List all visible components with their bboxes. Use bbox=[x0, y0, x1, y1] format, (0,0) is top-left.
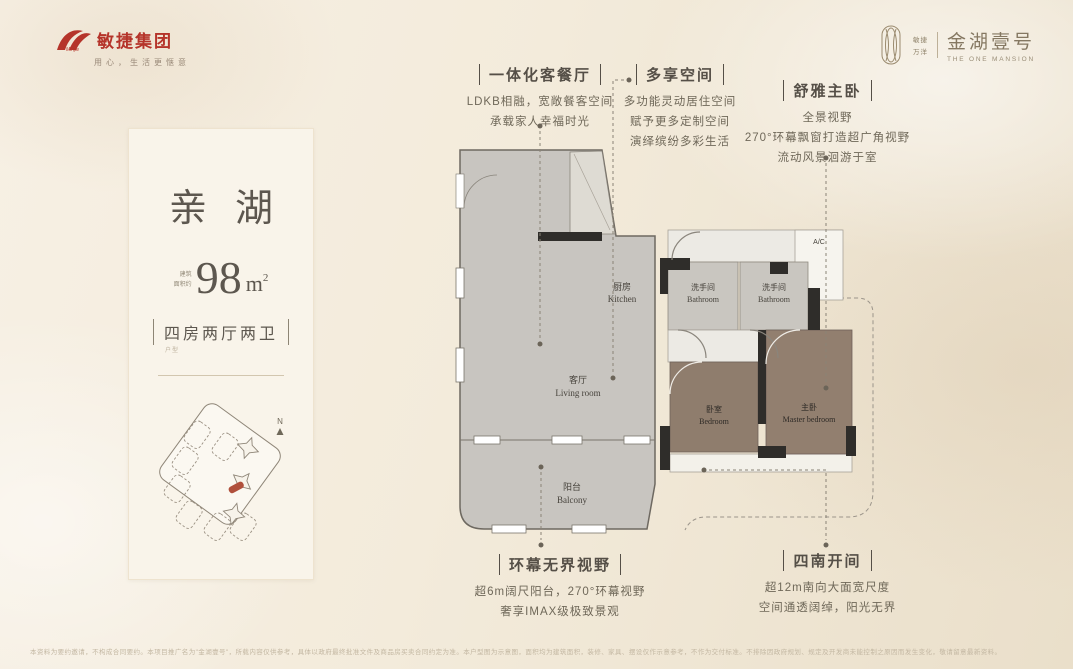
area-prefix-line1: 建筑 bbox=[174, 269, 192, 278]
label-bath2-en: Bathroom bbox=[758, 295, 791, 304]
callout-title: 一体化客餐厅 bbox=[479, 64, 601, 85]
unit-area: 建筑 面积约 98 m2 bbox=[129, 258, 313, 297]
floor-plan: 厨房 Kitchen 客厅 Living room 阳台 Balcony 洗手间… bbox=[452, 138, 882, 546]
site-boundary bbox=[156, 400, 285, 529]
area-unit: m bbox=[246, 271, 263, 296]
callout-title: 舒雅主卧 bbox=[783, 80, 871, 101]
card-separator bbox=[158, 375, 284, 376]
label-balcony-zh: 阳台 bbox=[563, 481, 581, 492]
brand-name: 敏捷集团 bbox=[97, 27, 173, 52]
callout-master-suite: 舒雅主卧 全景视野 270°环幕飘窗打造超广角视野 流动风景洄游于室 bbox=[730, 80, 925, 168]
label-kitchen-zh: 厨房 bbox=[613, 281, 631, 292]
callout-line: 流动风景洄游于室 bbox=[730, 148, 925, 168]
project-name: 金湖壹号 bbox=[947, 27, 1035, 54]
entry-door-gap bbox=[456, 174, 464, 208]
callout-line: 超6m阔尺阳台，270°环幕视野 bbox=[460, 582, 660, 602]
brand-swoosh-icon: Minjie bbox=[56, 26, 92, 52]
label-living-zh: 客厅 bbox=[569, 374, 587, 385]
unit-title: 亲湖 bbox=[129, 177, 313, 232]
callout-line: 全景视野 bbox=[730, 108, 925, 128]
area-prefix-line2: 面积约 bbox=[174, 279, 192, 288]
room-main-gray bbox=[460, 150, 655, 529]
wall-kitchen bbox=[538, 232, 602, 241]
callout-title: 环幕无界视野 bbox=[499, 554, 621, 575]
label-bedroom-zh: 卧室 bbox=[706, 404, 722, 414]
label-balcony-en: Balcony bbox=[557, 495, 587, 505]
area-sup: 2 bbox=[263, 272, 269, 284]
label-living-en: Living room bbox=[555, 388, 600, 398]
area-value: 98 bbox=[196, 258, 242, 297]
label-bedroom-en: Bedroom bbox=[699, 417, 730, 426]
unit-layout: 四房两厅两卫 bbox=[153, 319, 289, 345]
unit-card: 亲湖 建筑 面积约 98 m2 四房两厅两卫 户型 bbox=[128, 128, 314, 580]
label-master-zh: 主卧 bbox=[801, 402, 817, 412]
project-name-en: THE ONE MANSION bbox=[947, 56, 1035, 63]
brand-slogan: 用心，生活更惬意 bbox=[56, 57, 190, 68]
room-master-bedroom bbox=[766, 330, 852, 454]
project-emblem-icon bbox=[878, 24, 904, 66]
callout-line: 270°环幕飘窗打造超广角视野 bbox=[730, 128, 925, 148]
unit-layout-note: 户型 bbox=[165, 345, 179, 354]
label-ac: A/C bbox=[813, 239, 825, 246]
compass-arrow-icon bbox=[277, 428, 284, 435]
project-logo: 敏捷 万洋 金湖壹号 THE ONE MANSION bbox=[878, 24, 1035, 66]
compass-label: N bbox=[277, 417, 283, 426]
callout-line: 空间通透阔绰，阳光无界 bbox=[740, 598, 915, 618]
label-bath2-zh: 洗手间 bbox=[762, 282, 786, 292]
poster-page: Minjie 敏捷集团 用心，生活更惬意 敏捷 万洋 金湖壹号 THE ONE … bbox=[0, 0, 1073, 669]
project-cobrand-top: 敏捷 bbox=[913, 34, 928, 44]
brand-logo: Minjie 敏捷集团 用心，生活更惬意 bbox=[56, 26, 190, 68]
callout-title: 四南开间 bbox=[783, 550, 871, 571]
label-kitchen-en: Kitchen bbox=[608, 294, 637, 304]
callout-title: 多享空间 bbox=[636, 64, 724, 85]
callout-line: 奢享IMAX级极致景观 bbox=[460, 602, 660, 622]
project-cobrand-bottom: 万洋 bbox=[913, 46, 928, 56]
callout-panoramic-view: 环幕无界视野 超6m阔尺阳台，270°环幕视野 奢享IMAX级极致景观 bbox=[460, 554, 660, 622]
project-divider bbox=[937, 32, 938, 58]
callout-line: 超12m南向大面宽尺度 bbox=[740, 578, 915, 598]
brand-latin: Minjie bbox=[66, 47, 79, 52]
label-master-en: Master bedroom bbox=[783, 415, 836, 424]
disclaimer-text: 本资料为要约邀请，不构成合同要约。本项目推广名为"金湖壹号"，所载内容仅供参考，… bbox=[30, 646, 1047, 656]
site-plan: N bbox=[146, 386, 296, 558]
label-bath1-zh: 洗手间 bbox=[691, 282, 715, 292]
label-bath1-en: Bathroom bbox=[687, 295, 720, 304]
callout-south-bays: 四南开间 超12m南向大面宽尺度 空间通透阔绰，阳光无界 bbox=[740, 550, 915, 618]
